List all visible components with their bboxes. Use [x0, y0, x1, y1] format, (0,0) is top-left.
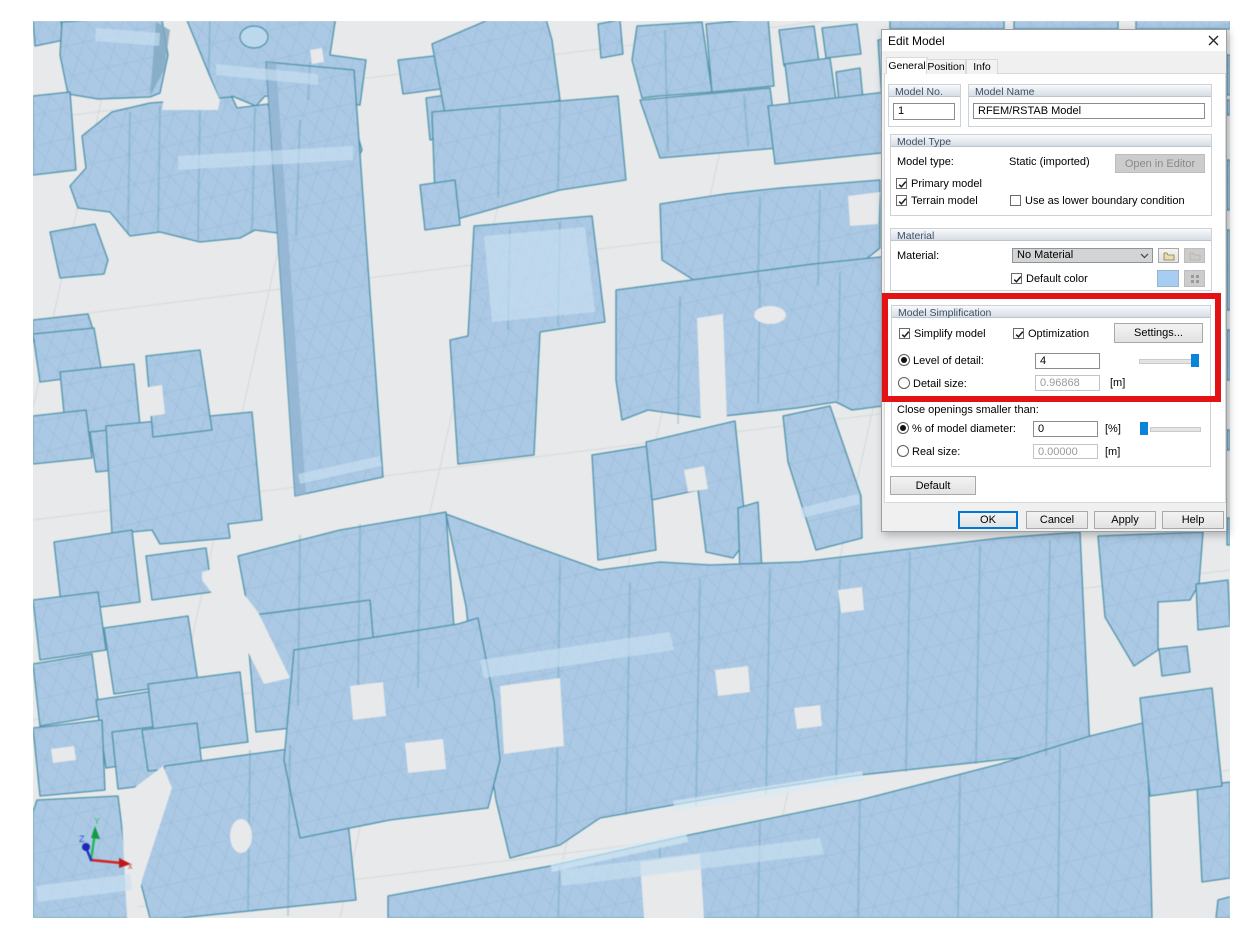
svg-text:Z: Z [79, 834, 85, 844]
svg-text:Y: Y [94, 816, 100, 826]
svg-text:x: x [128, 861, 133, 871]
